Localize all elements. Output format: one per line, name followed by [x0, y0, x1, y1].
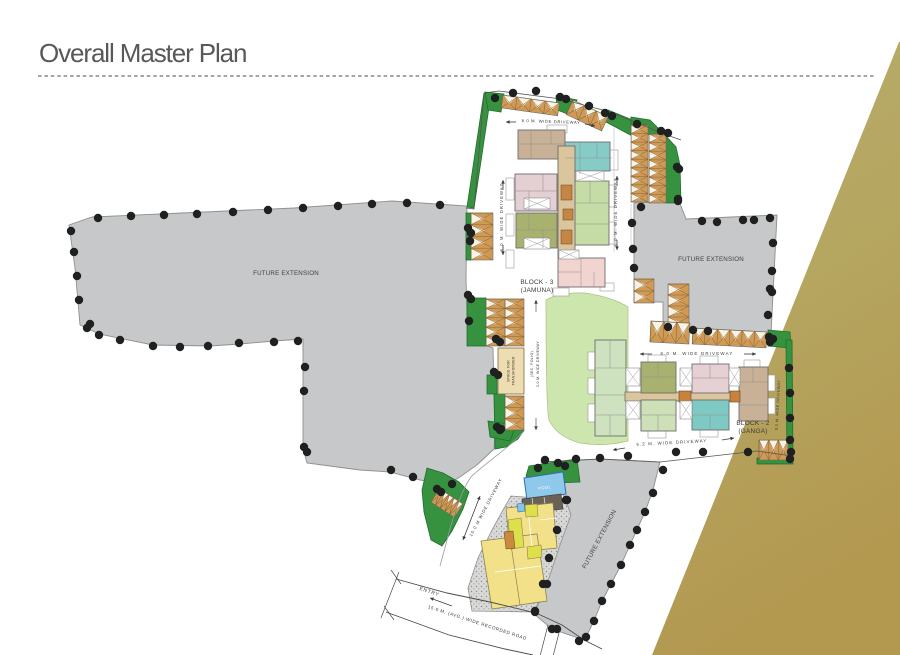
svg-text:Overall Master Plan: Overall Master Plan: [39, 38, 246, 68]
svg-text:(SEC. FOLIO): (SEC. FOLIO): [530, 351, 534, 377]
svg-text:FUTURE EXTENSION: FUTURE EXTENSION: [253, 270, 319, 277]
svg-text:3.0 M. WIDE DRIVEWAY: 3.0 M. WIDE DRIVEWAY: [536, 341, 540, 387]
svg-text:BLOCK - 2: BLOCK - 2: [736, 420, 769, 427]
svg-text:TRANSFORMER: TRANSFORMER: [512, 356, 516, 386]
svg-text:(JAMUNA): (JAMUNA): [521, 287, 554, 294]
svg-text:SPACE FOR: SPACE FOR: [507, 360, 511, 382]
svg-text:6.0 M. WIDE DRIVEWAY: 6.0 M. WIDE DRIVEWAY: [613, 178, 618, 247]
svg-text:6.0 M. WIDE DRIVEWAY: 6.0 M. WIDE DRIVEWAY: [499, 183, 504, 252]
svg-text:6.0 M. WIDE DRIVEWAY: 6.0 M. WIDE DRIVEWAY: [660, 351, 733, 356]
svg-text:BLOCK - 3: BLOCK - 3: [520, 279, 553, 286]
svg-text:(GANGA): (GANGA): [738, 428, 767, 435]
svg-text:FUTURE EXTENSION: FUTURE EXTENSION: [678, 256, 744, 263]
